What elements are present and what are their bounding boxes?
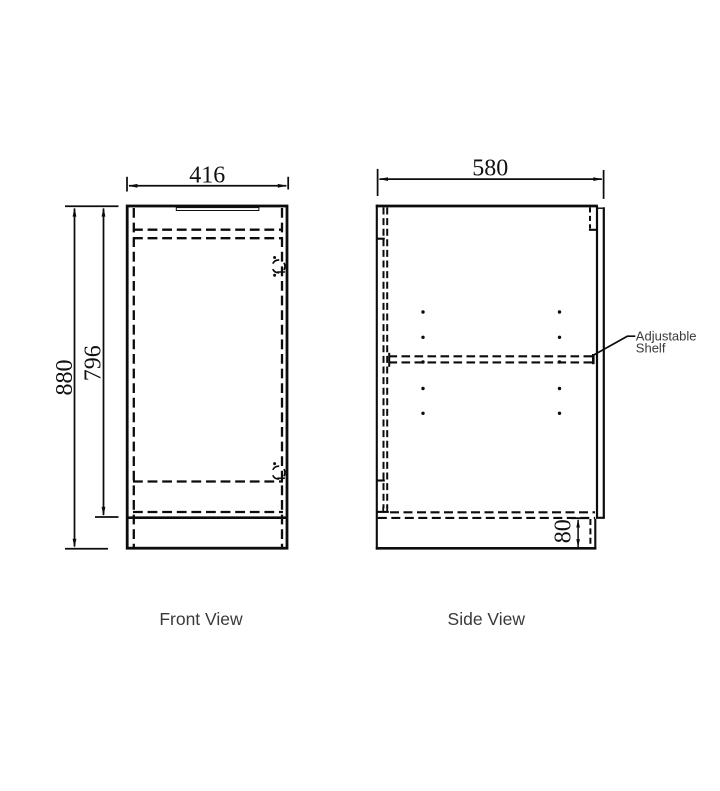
svg-text:796: 796 — [80, 345, 106, 381]
svg-text:Front View: Front View — [159, 609, 243, 629]
svg-text:Side View: Side View — [448, 609, 526, 629]
svg-text:80: 80 — [551, 519, 577, 543]
svg-text:580: 580 — [472, 156, 508, 182]
svg-text:Shelf: Shelf — [636, 340, 666, 355]
svg-text:416: 416 — [189, 163, 225, 189]
svg-text:880: 880 — [52, 360, 78, 396]
